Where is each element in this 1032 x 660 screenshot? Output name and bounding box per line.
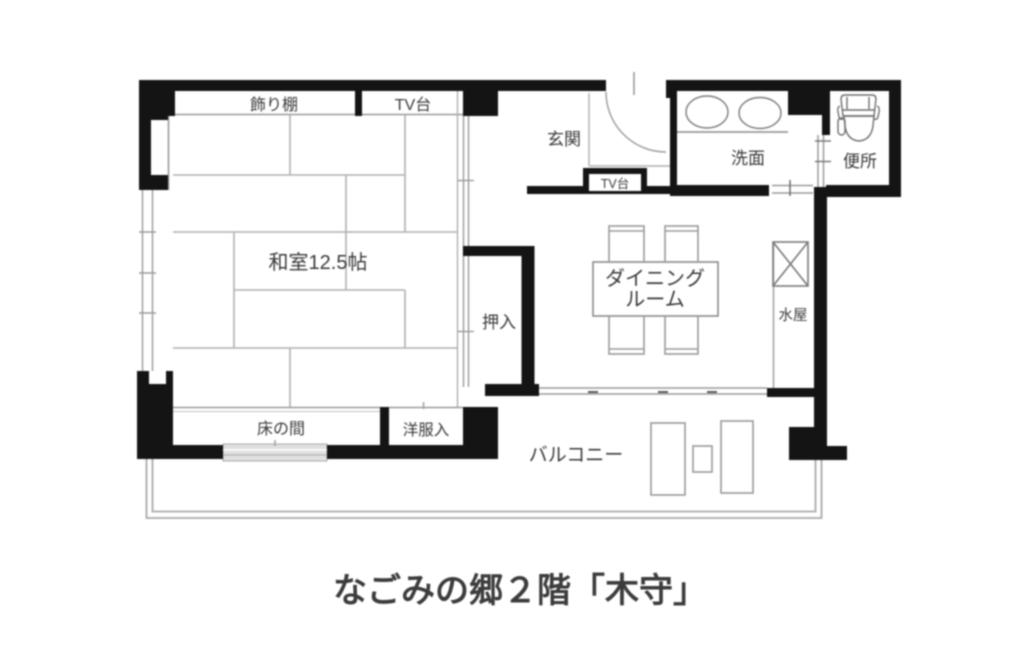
svg-text:玄関: 玄関 — [547, 130, 581, 149]
svg-text:洗面: 洗面 — [731, 149, 765, 168]
svg-text:なごみの郷２階「木守」: なごみの郷２階「木守」 — [333, 572, 707, 610]
svg-text:飾り棚: 飾り棚 — [250, 96, 298, 114]
svg-text:TV台: TV台 — [601, 176, 629, 191]
svg-text:ダイニング: ダイニング — [605, 267, 705, 290]
svg-text:床の間: 床の間 — [257, 420, 305, 438]
svg-text:TV台: TV台 — [395, 96, 431, 114]
svg-text:洋服入: 洋服入 — [403, 421, 450, 439]
svg-text:ルーム: ルーム — [625, 289, 684, 311]
svg-text:和室12.5帖: 和室12.5帖 — [269, 251, 368, 274]
svg-text:押入: 押入 — [482, 313, 516, 332]
svg-text:バルコニー: バルコニー — [529, 445, 624, 466]
svg-text:水屋: 水屋 — [779, 307, 808, 324]
svg-text:便所: 便所 — [843, 152, 877, 171]
